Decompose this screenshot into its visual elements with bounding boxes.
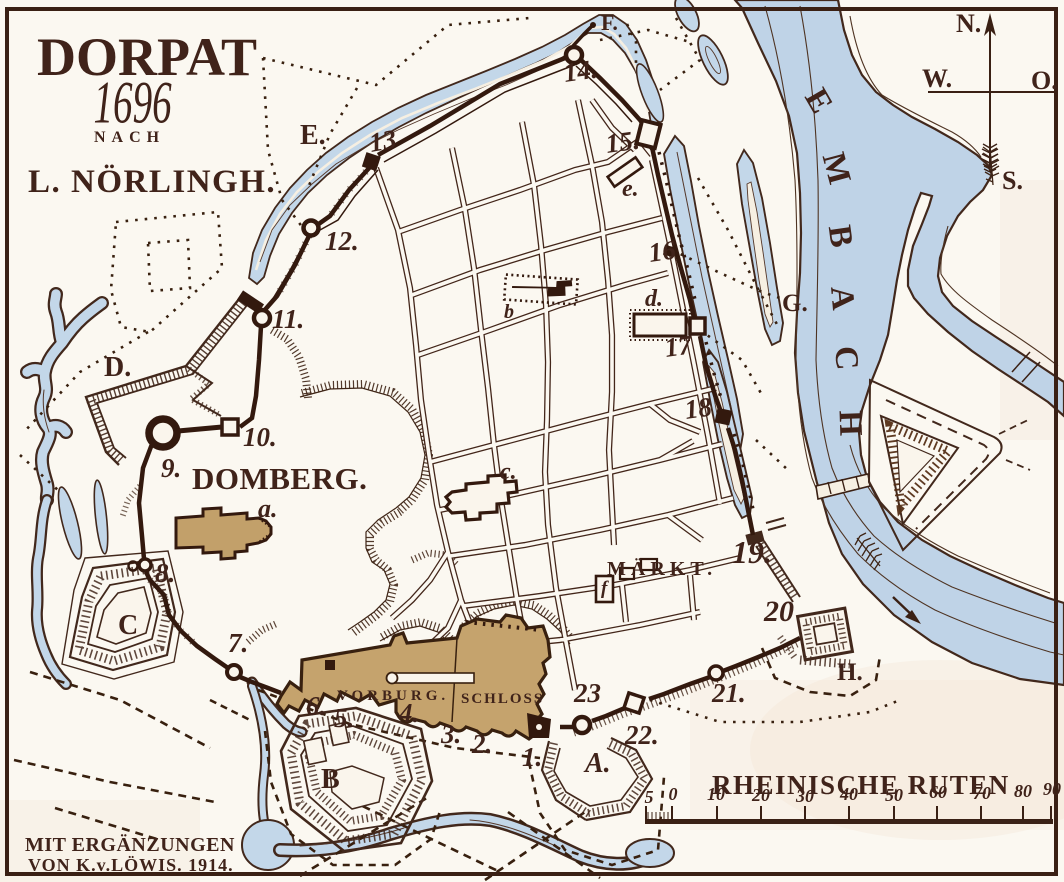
svg-text:15.: 15. — [604, 125, 642, 159]
svg-text:21.: 21. — [711, 678, 746, 708]
svg-text:L. NÖRLINGH.: L. NÖRLINGH. — [28, 163, 276, 200]
svg-text:16: 16 — [647, 234, 678, 268]
svg-text:A: A — [823, 285, 861, 312]
svg-text:4.: 4. — [398, 698, 419, 728]
svg-text:6.: 6. — [306, 691, 326, 721]
svg-text:MÄRKT.: MÄRKT. — [607, 557, 717, 580]
svg-text:20: 20 — [763, 595, 794, 628]
svg-text:G.: G. — [782, 290, 808, 317]
svg-text:10.: 10. — [243, 422, 277, 452]
svg-text:23: 23 — [573, 678, 601, 708]
svg-text:H.: H. — [837, 659, 863, 686]
svg-text:VORBURG.: VORBURG. — [337, 688, 449, 704]
svg-text:19.: 19. — [732, 534, 772, 570]
svg-text:8.: 8. — [155, 558, 175, 588]
svg-text:22.: 22. — [624, 720, 659, 750]
svg-text:11.: 11. — [272, 304, 304, 334]
svg-text:W.: W. — [922, 64, 952, 93]
svg-text:VON K.v.LÖWIS. 1914.: VON K.v.LÖWIS. 1914. — [28, 855, 234, 875]
svg-text:9.: 9. — [161, 453, 181, 483]
svg-text:40: 40 — [839, 784, 858, 804]
svg-text:a.: a. — [258, 494, 278, 523]
svg-text:MIT ERGÄNZUNGEN: MIT ERGÄNZUNGEN — [25, 833, 235, 856]
svg-text:80: 80 — [1014, 781, 1032, 801]
svg-text:b: b — [504, 301, 514, 323]
svg-text:B: B — [321, 764, 340, 795]
svg-text:C: C — [827, 345, 865, 372]
svg-text:90: 90 — [1043, 779, 1061, 799]
svg-text:1696: 1696 — [94, 69, 173, 137]
svg-text:A.: A. — [583, 748, 611, 779]
svg-text:1.: 1. — [522, 742, 542, 772]
svg-text:5: 5 — [645, 787, 654, 807]
svg-text:10: 10 — [707, 784, 725, 804]
svg-text:70: 70 — [973, 783, 991, 803]
svg-text:N.: N. — [956, 9, 981, 38]
svg-text:c.: c. — [500, 459, 517, 485]
svg-text:d.: d. — [645, 286, 663, 312]
svg-text:S.: S. — [1002, 166, 1023, 195]
svg-text:5.: 5. — [334, 703, 354, 733]
svg-text:2.: 2. — [471, 729, 492, 759]
svg-text:D.: D. — [104, 352, 131, 383]
svg-text:SCHLOSS: SCHLOSS — [461, 691, 544, 707]
svg-text:O.: O. — [1031, 66, 1058, 95]
svg-text:DOMBERG.: DOMBERG. — [192, 461, 367, 496]
svg-text:0: 0 — [669, 784, 678, 804]
svg-text:60: 60 — [929, 782, 947, 802]
svg-text:20: 20 — [751, 785, 770, 805]
svg-text:50: 50 — [885, 785, 903, 805]
svg-text:12.: 12. — [325, 226, 359, 256]
svg-text:e.: e. — [622, 176, 639, 202]
svg-text:E.: E. — [300, 120, 326, 151]
svg-text:F.: F. — [601, 10, 618, 35]
svg-text:30: 30 — [795, 786, 814, 806]
svg-text:NACH: NACH — [94, 129, 165, 146]
svg-text:7.: 7. — [228, 628, 248, 658]
svg-text:18: 18 — [683, 391, 714, 425]
svg-text:C: C — [118, 610, 138, 641]
svg-text:13: 13 — [367, 124, 399, 158]
svg-text:3.: 3. — [440, 719, 461, 749]
svg-text:14.: 14. — [562, 54, 600, 88]
svg-text:H: H — [832, 410, 869, 437]
